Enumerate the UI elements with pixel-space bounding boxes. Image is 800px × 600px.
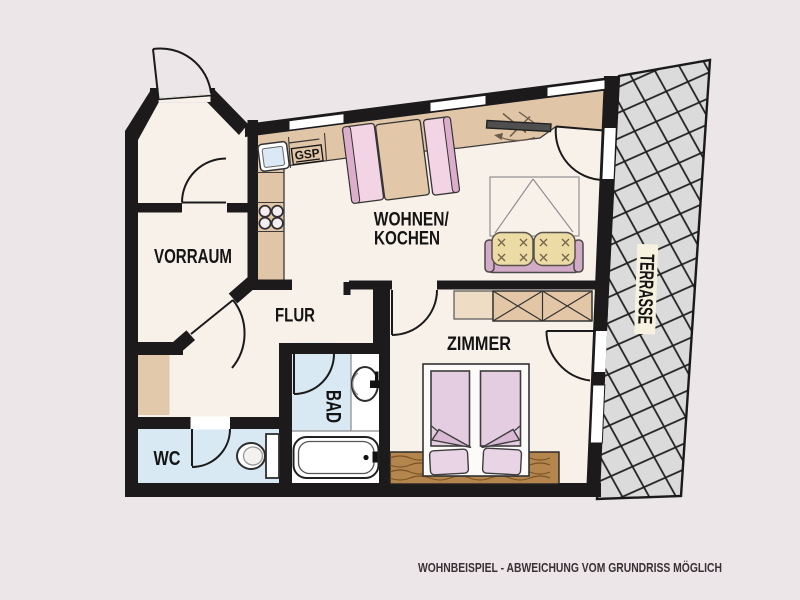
svg-text:WC: WC <box>154 448 181 470</box>
svg-text:ZIMMER: ZIMMER <box>447 334 511 355</box>
svg-text:VORRAUM: VORRAUM <box>154 246 232 268</box>
svg-text:WOHNBEISPIEL - ABWEICHUNG VOM: WOHNBEISPIEL - ABWEICHUNG VOM GRUNDRISS … <box>418 560 722 575</box>
svg-text:BAD: BAD <box>322 390 345 423</box>
svg-text:KOCHEN: KOCHEN <box>374 229 440 250</box>
svg-text:TERRASSE: TERRASSE <box>633 254 657 325</box>
svg-text:WOHNEN/: WOHNEN/ <box>374 210 450 231</box>
svg-text:FLUR: FLUR <box>275 306 315 327</box>
